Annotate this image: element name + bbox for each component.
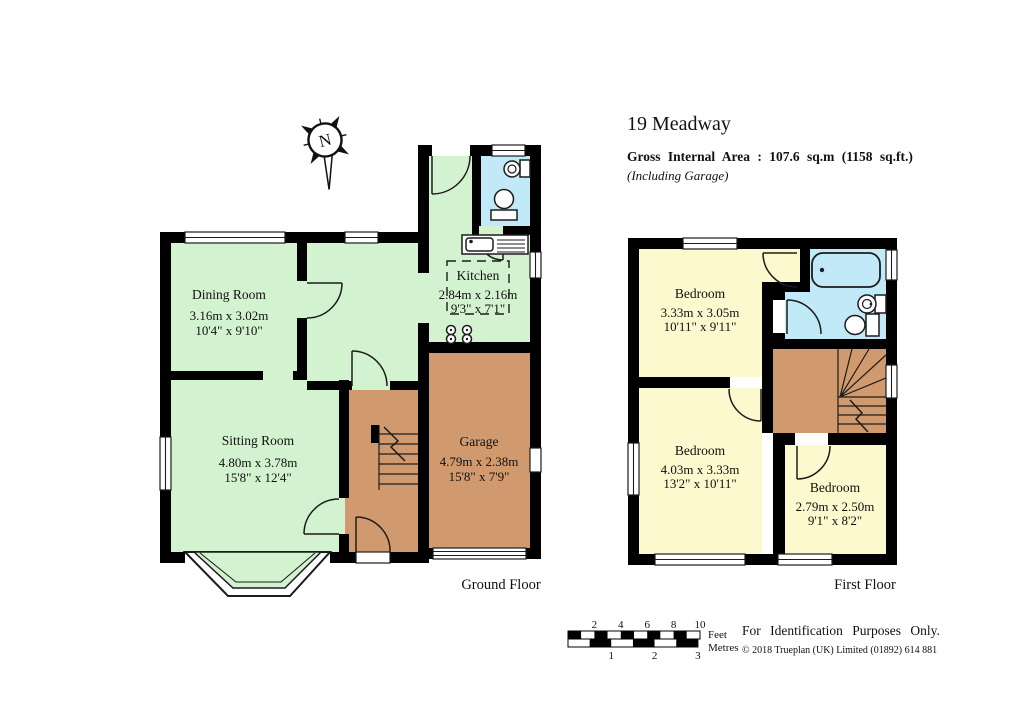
window <box>530 252 541 278</box>
wall <box>160 232 171 563</box>
room-label: Dining Room <box>192 287 266 302</box>
metre-tick: 2 <box>652 650 658 662</box>
wall <box>773 333 785 339</box>
stair-newel <box>371 425 379 443</box>
floorplan-canvas: 19 Meadway Gross Internal Area : 107.6 s… <box>0 0 1020 721</box>
wall <box>762 282 810 292</box>
scale-bar-metre-ticks: 1 2 3 <box>609 650 702 662</box>
wall <box>628 238 639 565</box>
wall <box>530 278 541 448</box>
room-bedroom1-entry <box>762 249 800 282</box>
window <box>886 250 897 280</box>
room-dim-metric: 3.16m x 3.02m <box>190 308 269 323</box>
wc-basin-icon <box>504 160 530 177</box>
window <box>160 437 171 490</box>
window <box>778 554 832 565</box>
footer: For Identification Purposes Only. © 2018… <box>742 623 940 656</box>
wall <box>418 342 530 353</box>
metre-tick: 1 <box>609 650 615 662</box>
garage-door <box>433 548 526 559</box>
room-label: Bedroom <box>675 286 726 301</box>
wall <box>530 145 541 252</box>
purpose-statement: For Identification Purposes Only. <box>742 623 940 638</box>
compass-north-icon: N <box>297 112 359 193</box>
scale-bar-metres <box>568 639 698 647</box>
wall <box>418 145 429 243</box>
wall <box>628 377 730 388</box>
ground-floor-title: Ground Floor <box>461 577 541 593</box>
wall <box>503 226 530 235</box>
feet-tick: 6 <box>644 619 650 631</box>
wall <box>429 548 433 559</box>
wall <box>418 145 432 156</box>
window <box>345 232 378 243</box>
metre-tick: 3 <box>695 650 701 662</box>
feet-unit-label: Feet <box>708 629 727 641</box>
wall <box>293 371 307 380</box>
wall <box>530 472 541 559</box>
scale-bar-feet-ticks: 2 4 6 8 10 <box>592 619 706 631</box>
sink-unit-icon <box>462 235 528 254</box>
wall <box>762 282 773 433</box>
window <box>683 238 737 249</box>
room-label: Kitchen <box>457 268 500 283</box>
bay-window <box>185 552 330 596</box>
basin-icon <box>858 295 886 313</box>
metres-unit-label: Metres <box>708 642 739 654</box>
room-dim-imperial: 13'2" x 10'11" <box>663 476 736 491</box>
gross-area-text: Gross Internal Area : 107.6 sq.m (1158 s… <box>627 149 913 164</box>
room-dim-metric: 4.80m x 3.78m <box>219 455 298 470</box>
wall <box>297 243 307 281</box>
wall <box>773 339 886 349</box>
wall <box>773 292 785 300</box>
room-landing <box>773 349 886 433</box>
wall <box>886 238 897 565</box>
wall <box>390 381 418 390</box>
wall <box>628 238 897 249</box>
wall <box>339 380 349 498</box>
including-garage-note: (Including Garage) <box>627 168 728 183</box>
room-label: Bedroom <box>810 480 861 495</box>
first-floor-title: First Floor <box>834 577 896 593</box>
room-label: Bedroom <box>675 443 726 458</box>
room-dim-imperial: 10'11" x 9'11" <box>664 319 737 334</box>
wall <box>418 323 429 563</box>
room-dim-metric: 4.79m x 2.38m <box>440 454 519 469</box>
room-dim-imperial: 15'8" x 12'4" <box>224 470 291 485</box>
feet-tick: 8 <box>671 619 677 631</box>
wall <box>160 552 185 563</box>
room-dim-imperial: 15'8" x 7'9" <box>449 469 510 484</box>
feet-tick: 2 <box>592 619 598 631</box>
wall <box>160 371 263 380</box>
room-dim-metric: 3.33m x 3.05m <box>661 305 740 320</box>
room-dim-imperial: 9'3" x 7'1" <box>451 301 505 316</box>
room-garage <box>429 353 530 548</box>
window <box>185 232 285 243</box>
room-dim-metric: 4.03m x 3.33m <box>661 462 740 477</box>
window <box>886 365 897 398</box>
wall <box>418 243 429 273</box>
wall <box>297 318 307 371</box>
scale-bar: 2 4 6 8 10 1 2 3 Feet Metres <box>568 619 739 662</box>
room-label: Garage <box>460 434 499 449</box>
feet-tick: 4 <box>618 619 624 631</box>
room-label: Sitting Room <box>222 433 295 448</box>
wall <box>470 145 492 156</box>
window <box>655 554 745 565</box>
floorplan-page: 19 Meadway Gross Internal Area : 107.6 s… <box>0 0 1020 721</box>
copyright-text: © 2018 Trueplan (UK) Limited (01892) 614… <box>742 645 937 656</box>
front-door-threshold <box>356 552 390 563</box>
room-dining <box>171 243 297 371</box>
scale-bar-feet <box>568 631 700 639</box>
toilet-icon <box>845 314 879 336</box>
window <box>628 443 639 495</box>
room-dim-imperial: 10'4" x 9'10" <box>195 323 262 338</box>
room-dim-imperial: 9'1" x 8'2" <box>808 513 862 528</box>
room-dim-metric: 2.84m x 2.16m <box>439 287 518 302</box>
wall <box>330 552 356 563</box>
garage-side-door <box>530 448 541 472</box>
feet-tick: 10 <box>695 619 707 631</box>
bathtub-icon <box>812 253 880 287</box>
wall <box>785 433 795 445</box>
wall <box>828 433 886 445</box>
ground-floor-plan: Dining Room 3.16m x 3.02m 10'4" x 9'10" … <box>160 145 541 596</box>
wall <box>339 534 349 552</box>
window <box>492 145 525 156</box>
header: 19 Meadway Gross Internal Area : 107.6 s… <box>627 113 913 183</box>
wall <box>472 226 479 235</box>
kitchen-opening <box>418 273 429 323</box>
wall <box>773 433 785 554</box>
wall <box>472 156 481 226</box>
first-floor-plan: Bedroom 3.33m x 3.05m 10'11" x 9'11" Bed… <box>628 238 897 593</box>
room-dim-metric: 2.79m x 2.50m <box>796 499 875 514</box>
page-title: 19 Meadway <box>627 113 731 135</box>
